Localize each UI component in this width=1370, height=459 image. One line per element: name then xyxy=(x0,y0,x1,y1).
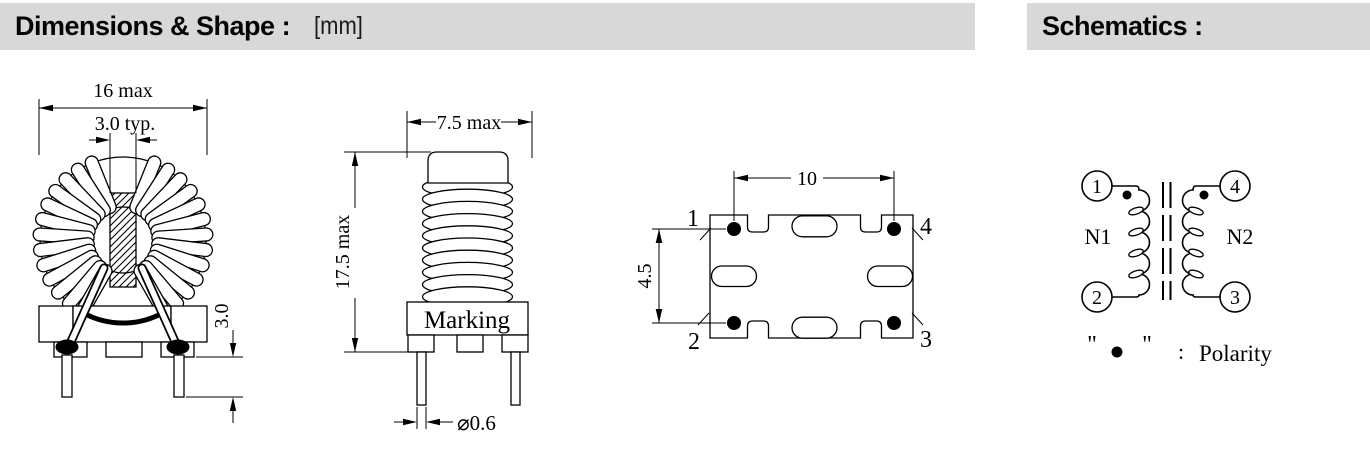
pin-4-label: 4 xyxy=(920,214,932,240)
coil-crossover-loops xyxy=(1128,206,1204,280)
bottom-view-drawing: 1 4 2 3 10 4.5 xyxy=(634,168,932,355)
dim-10: 10 xyxy=(734,168,894,221)
dim-lead-diameter: ⌀0.6 xyxy=(394,407,496,435)
dim-16-max-label: 16 max xyxy=(93,80,152,102)
legend-quote-close: " xyxy=(1142,332,1152,358)
base-slot xyxy=(712,266,757,287)
dim-10-label: 10 xyxy=(797,168,817,190)
coil-loop xyxy=(1188,269,1204,280)
dim-lead-diameter-label: ⌀0.6 xyxy=(457,411,496,435)
polarity-dot-n2 xyxy=(1200,191,1209,200)
dim-3-pin-label: 3.0 xyxy=(211,304,233,329)
base-slot xyxy=(792,317,837,338)
base-slot xyxy=(792,216,837,237)
schematic-pin-3: 3 xyxy=(1230,287,1240,309)
polarity-dot-n1 xyxy=(1123,191,1132,200)
winding-rings xyxy=(423,177,513,307)
marking-label: Marking xyxy=(424,307,511,334)
base-left-block xyxy=(39,306,73,342)
pin-1-pad xyxy=(727,222,741,236)
schematic-pin-1: 1 xyxy=(1092,176,1102,198)
coil-loop xyxy=(1128,248,1144,259)
base-tab xyxy=(502,335,528,352)
pin-2-label: 2 xyxy=(688,329,700,355)
lead-pin xyxy=(417,352,426,405)
dim-17-5-label: 17.5 max xyxy=(332,215,354,289)
lead-pin xyxy=(511,352,520,405)
base-tab xyxy=(106,342,142,357)
legend-polarity-label: Polarity xyxy=(1199,341,1272,366)
side-view-drawing: Marking 7.5 max 17.5 max xyxy=(332,111,532,435)
solder-joint xyxy=(167,340,190,355)
coil-loop xyxy=(1128,227,1144,238)
dim-7-5-label: 7.5 max xyxy=(437,112,501,134)
pin-3-label: 3 xyxy=(920,327,932,353)
schematic-pin-4: 4 xyxy=(1230,176,1240,198)
winding-n1-coil xyxy=(1112,186,1150,297)
pin-1-label: 1 xyxy=(687,206,699,232)
pin-3-pad xyxy=(887,316,901,330)
legend-colon: : xyxy=(1178,339,1184,364)
legend-polarity-dot xyxy=(1112,347,1123,358)
coil-loop xyxy=(1188,206,1204,217)
winding-n2-coil xyxy=(1183,186,1221,297)
technical-drawing-canvas: 16 max 3.0 typ. 3.0 Marking xyxy=(0,0,1370,459)
coil-loop xyxy=(1128,206,1144,217)
front-view-drawing: 16 max 3.0 typ. 3.0 xyxy=(33,80,243,423)
solder-joint xyxy=(56,340,79,355)
core-top-cap xyxy=(428,152,508,183)
legend-quote-open: " xyxy=(1087,332,1097,358)
pin-2-pad xyxy=(727,316,741,330)
base-slot xyxy=(868,266,913,287)
winding-n2-label: N2 xyxy=(1227,224,1254,249)
coil-loop xyxy=(1188,248,1204,259)
coil-loop xyxy=(1188,227,1204,238)
schematic-pin-2: 2 xyxy=(1092,287,1102,309)
lead-pin xyxy=(62,355,72,397)
dim-4-5-label: 4.5 xyxy=(634,264,656,289)
schematic-drawing: 1 2 4 3 N1 N2 " " : Polarity xyxy=(1082,171,1272,366)
base-tab xyxy=(457,335,483,352)
base-tab xyxy=(408,335,434,352)
coil-loop xyxy=(1128,269,1144,280)
lead-pin xyxy=(174,355,184,397)
dim-3-typ-label: 3.0 typ. xyxy=(95,113,156,135)
polarity-legend: " " : Polarity xyxy=(1087,332,1272,366)
winding-n1-label: N1 xyxy=(1085,224,1112,249)
pin-4-pad xyxy=(887,222,901,236)
dim-7-5-max: 7.5 max xyxy=(407,111,532,158)
